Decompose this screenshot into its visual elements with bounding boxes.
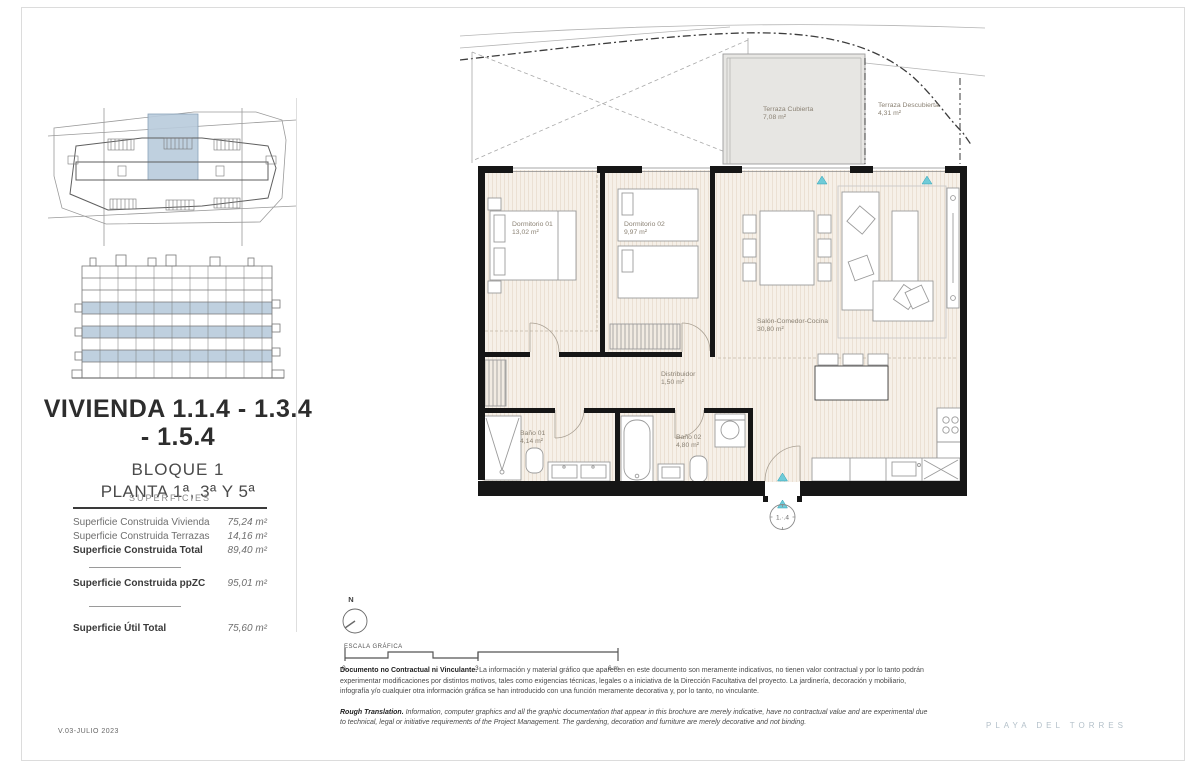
room-area: 9,97 m²: [624, 229, 648, 236]
table-row: Superficie Construida Terrazas 14,16 m²: [73, 530, 267, 544]
surface-value: 95,01 m²: [228, 577, 267, 591]
block-subtitle: BLOQUE 1: [40, 460, 316, 480]
room-label: Salón-Comedor-Cocina: [757, 318, 828, 325]
room-label: Terraza Descubierta: [878, 102, 939, 109]
floor-plan: Terraza Cubierta 7,08 m² Terraza Descubi…: [460, 18, 987, 533]
scale-and-compass: N ESCALA GRÁFICA 0 3 6 m: [340, 590, 632, 678]
disclaimer-spanish: Documento no Contractual ni Vinculante. …: [340, 666, 928, 698]
unit-location-highlight: [148, 114, 198, 180]
room-area: 30,80 m²: [757, 326, 785, 333]
surface-label: Superficie Construida ppZC: [73, 577, 205, 591]
disclaimer-english-lead: Rough Translation.: [340, 709, 404, 716]
disclaimer-spanish-lead: Documento no Contractual ni Vinculante.: [340, 667, 477, 674]
room-label: Baño 01: [520, 430, 546, 437]
surface-value: 14,16 m²: [228, 530, 267, 544]
room-area: 1,50 m²: [661, 379, 685, 386]
surface-label: Superficie Útil Total: [73, 622, 166, 636]
surfaces-table: SUPERFICIES Superficie Construida Vivien…: [73, 493, 267, 636]
room-area: 4,14 m²: [520, 438, 544, 445]
disclaimer-block: Documento no Contractual ni Vinculante. …: [340, 666, 928, 729]
scale-label: ESCALA GRÁFICA: [344, 643, 403, 650]
surface-value: 75,24 m²: [228, 516, 267, 530]
highlighted-floors: [82, 302, 272, 362]
surface-label: Superficie Construida Total: [73, 544, 203, 558]
room-label: Baño 02: [676, 434, 702, 441]
page-title: VIVIENDA 1.1.4 - 1.3.4 - 1.5.4: [40, 396, 316, 451]
divider: [89, 606, 181, 607]
title-block: VIVIENDA 1.1.4 - 1.3.4 - 1.5.4 BLOQUE 1 …: [40, 396, 316, 502]
room-label: Terraza Cubierta: [763, 106, 813, 113]
room-area: 4,31 m²: [878, 110, 902, 117]
room-area: 13,02 m²: [512, 229, 540, 236]
room-label: Dormitorio 02: [624, 221, 665, 228]
disclaimer-english: Rough Translation. Information, computer…: [340, 708, 928, 729]
room-area: 4,80 m²: [676, 442, 700, 449]
north-label: N: [348, 595, 353, 604]
version-label: V.03-JULIO 2023: [58, 728, 119, 735]
table-row: Superficie Útil Total 75,60 m²: [73, 622, 267, 636]
surface-label: Superficie Construida Vivienda: [73, 516, 210, 530]
site-plan-thumbnail: [46, 106, 298, 248]
room-label: Dormitorio 01: [512, 221, 553, 228]
roof-boundary-lines: [460, 25, 985, 146]
surface-value: 75,60 m²: [228, 622, 267, 636]
surface-value: 89,40 m²: [228, 544, 267, 558]
table-row: Superficie Construida Vivienda 75,24 m²: [73, 516, 267, 530]
table-row: Superficie Construida ppZC 95,01 m²: [73, 577, 267, 591]
unit-marker: 1.·.4: [770, 500, 795, 530]
void-area: [472, 38, 748, 163]
surfaces-header: SUPERFICIES: [73, 493, 267, 509]
room-area: 7,08 m²: [763, 114, 787, 121]
table-row: Superficie Construida Total 89,40 m²: [73, 544, 267, 558]
room-label: Distribuidor: [661, 371, 696, 378]
divider: [89, 567, 181, 568]
elevation-thumbnail: [70, 252, 286, 388]
surface-label: Superficie Construida Terrazas: [73, 530, 210, 544]
brand-label: PLAYA DEL TORRES: [986, 721, 1158, 730]
disclaimer-english-text: Information, computer graphics and all t…: [340, 709, 927, 727]
brochure-page: { "left_panel": { "title": "VIVIENDA 1.1…: [0, 0, 1200, 769]
unit-marker-label: 1.·.4: [776, 515, 789, 522]
